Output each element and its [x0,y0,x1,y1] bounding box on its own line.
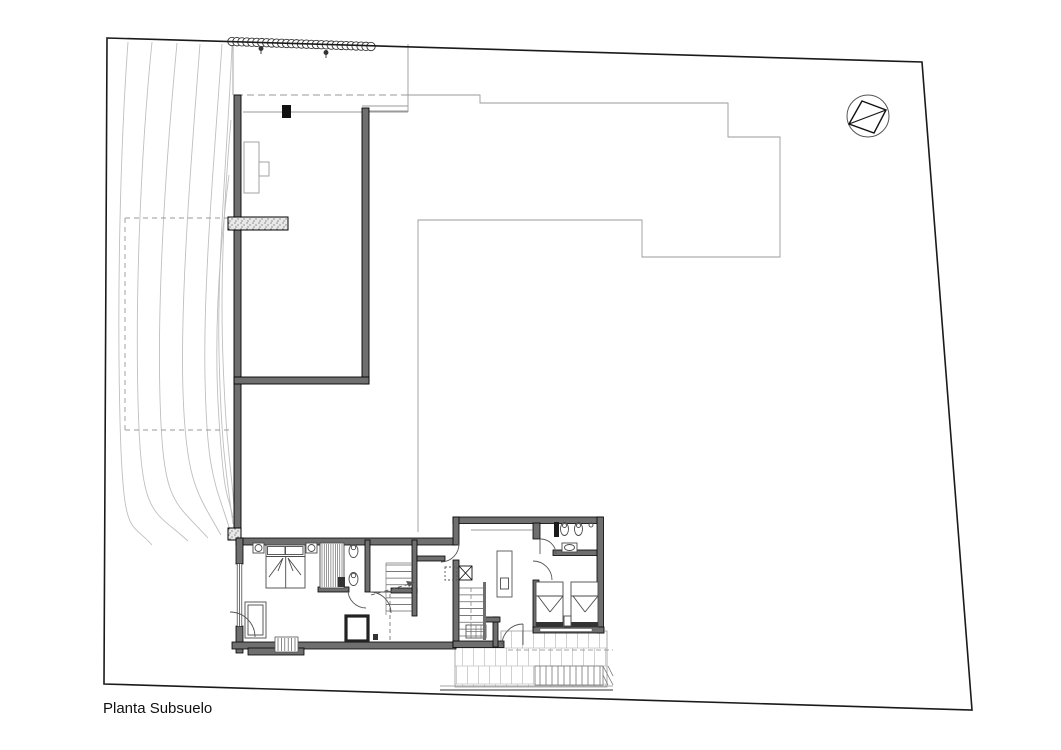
terrain-contours [119,42,234,545]
wall-equipment-outline [244,142,269,193]
floor-plan-svg: Planta Subsuelo [0,0,1061,750]
bathroom-2 [554,522,593,552]
closet [346,616,368,641]
nightstand-left [253,543,264,553]
north-arrow-icon [847,95,889,137]
single-bed-b [571,582,598,627]
shower-partition [554,522,559,537]
bedside-table [564,616,571,626]
single-bed-a [536,582,563,627]
terrace [440,625,613,690]
bathroom-1 [349,545,358,586]
wardrobe [320,543,345,588]
bedroom-2 [536,582,598,627]
kitchen-island [497,551,512,597]
plan-title: Planta Subsuelo [103,700,212,717]
structural-column [282,105,291,118]
drawing-sheet: Planta Subsuelo [0,0,1061,750]
double-bed [266,545,305,588]
exterior-stairs [535,666,613,685]
concrete-wall-stub [228,217,288,230]
nightstand-right [306,543,317,553]
upper-floor-outline [233,41,780,532]
entry-porch-steps [275,637,298,652]
setback-dashed-lines [125,218,232,430]
